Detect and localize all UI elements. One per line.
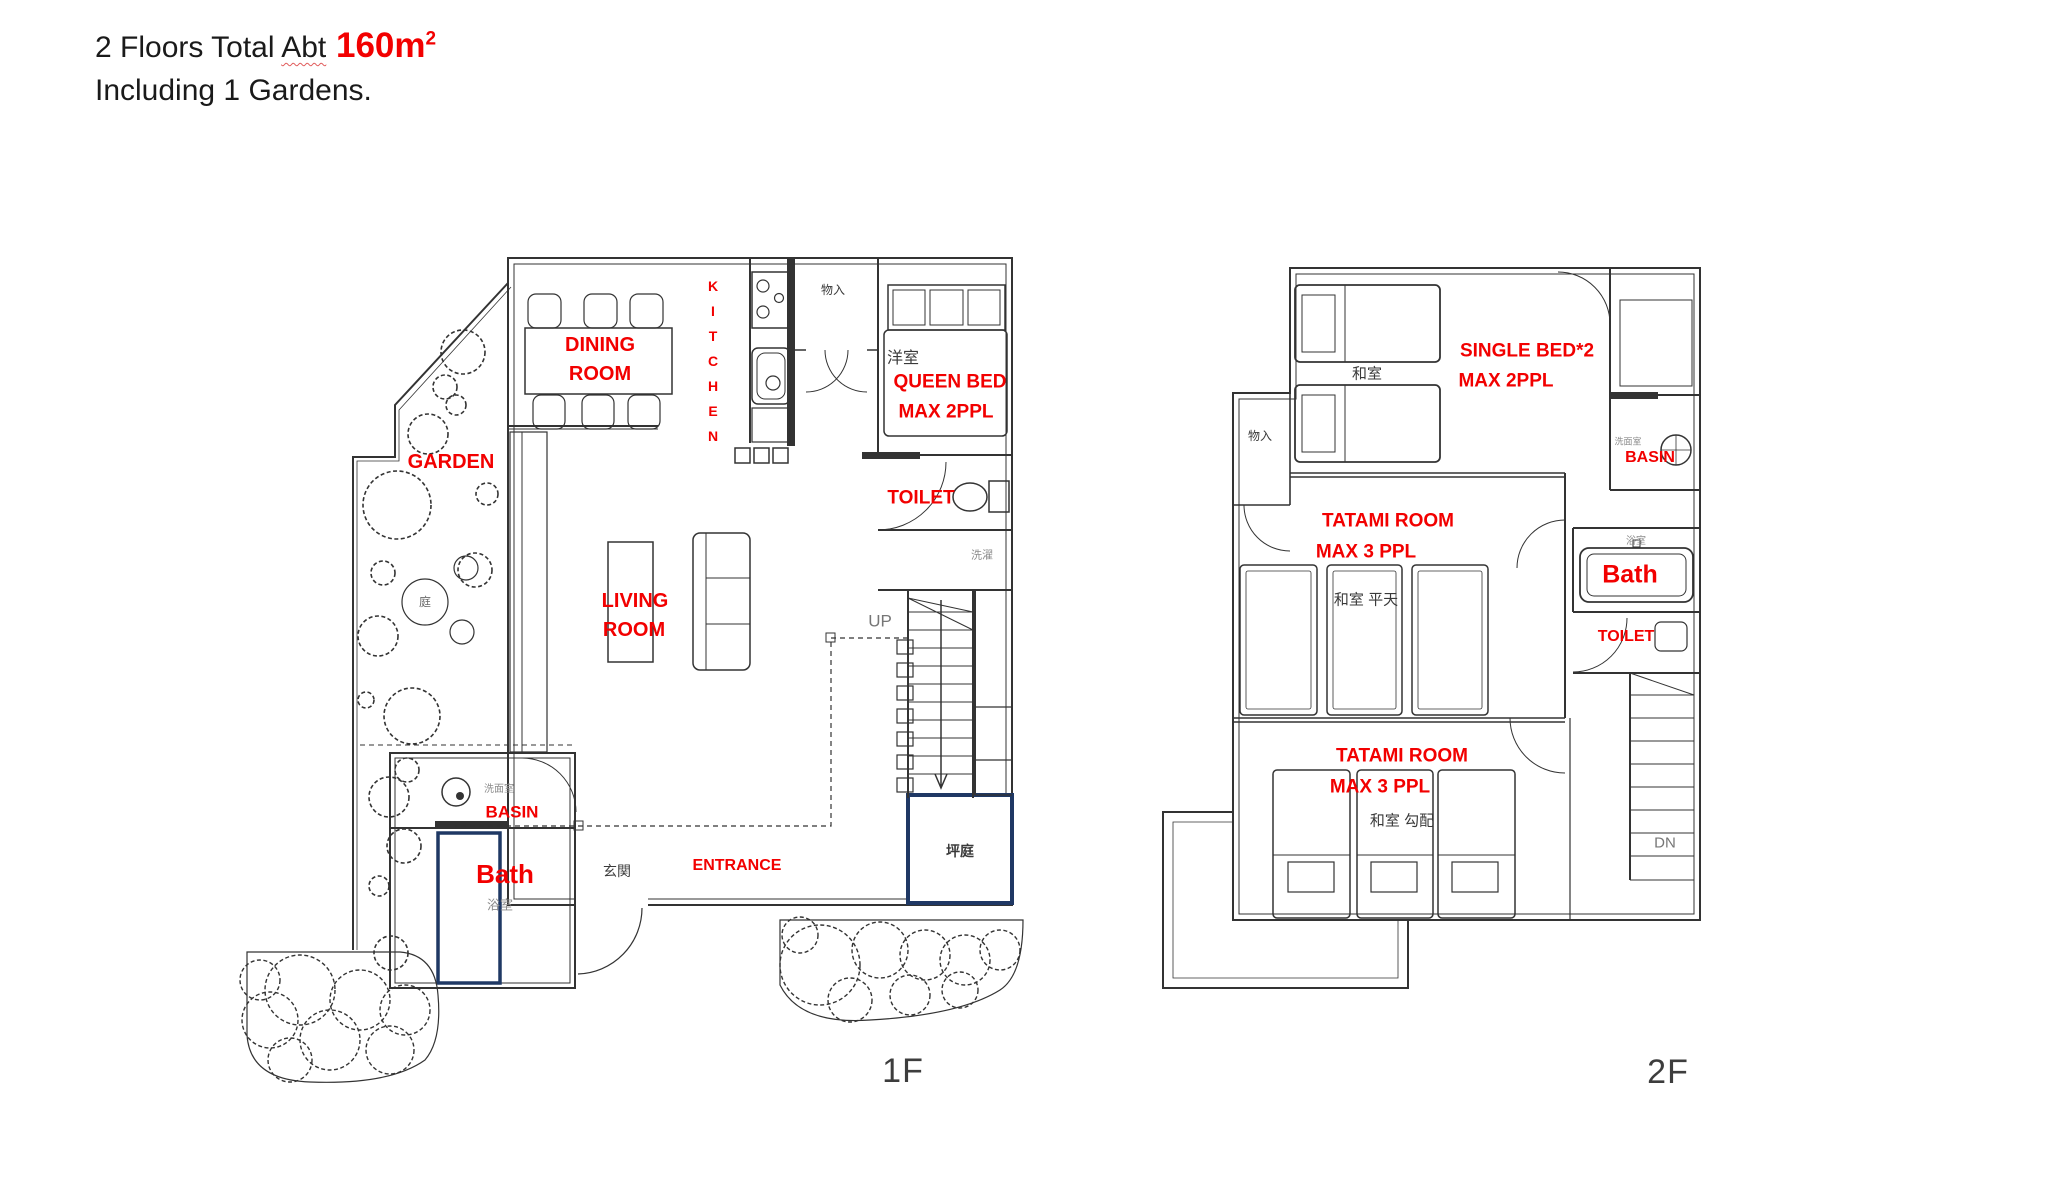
- tatami-mid-label-line2: MAX 3 PPL: [1316, 543, 1416, 562]
- shrubs-bottom-middle: [780, 917, 1023, 1022]
- queen-bedroom: [862, 258, 1012, 459]
- kitchen-label: KITCHEN: [705, 278, 721, 453]
- stove-burner-icon: [775, 294, 784, 303]
- chair-icon: [630, 294, 663, 328]
- chair-icon: [628, 395, 660, 429]
- floorplan-canvas: [0, 0, 2048, 1183]
- stairs-dn-label: DN: [1654, 836, 1676, 851]
- basin-label-1f: BASIN: [486, 804, 539, 821]
- futons-middle: [1240, 565, 1488, 715]
- toilet-icon: [953, 483, 987, 511]
- balcony-outline: [1163, 812, 1408, 988]
- washroom-jp-label-2f: 洗面室: [1614, 438, 1641, 447]
- toilet-room-2f: [1573, 618, 1700, 673]
- chair-icon: [582, 395, 614, 429]
- chair-icon: [584, 294, 617, 328]
- washroom-jp-label-1f: 洗面室: [484, 785, 514, 795]
- courtyard-label: 坪庭: [946, 844, 974, 858]
- queen-bed-icon: [888, 285, 1005, 330]
- washitsu-mid-label: 和室 平天: [1334, 593, 1398, 608]
- genkan-label: 玄関: [603, 864, 631, 878]
- single-bed-icon: [1295, 385, 1440, 462]
- floor1-label: 1F: [882, 1054, 924, 1088]
- toilet-label-1f: TOILET: [887, 489, 954, 508]
- western-room-label: 洋室: [887, 351, 919, 367]
- dining-set: [508, 294, 672, 429]
- stairs-1f: [897, 590, 1012, 798]
- page-subtitle: Including 1 Gardens.: [95, 74, 436, 108]
- living-room-label-line1: LIVING: [602, 591, 669, 611]
- closet-label-2f: 物入: [1248, 430, 1272, 442]
- floor2-label: 2F: [1647, 1055, 1689, 1089]
- dining-room-label-line2: ROOM: [569, 364, 631, 384]
- queen-bed-label-line2: MAX 2PPL: [898, 403, 993, 422]
- closet-1f: [795, 350, 878, 392]
- bath-label-1f: Bath: [476, 861, 534, 887]
- toilet-room-1f: [878, 462, 1012, 590]
- chair-icon: [528, 294, 561, 328]
- entrance-label: ENTRANCE: [693, 858, 782, 874]
- bathroom-jp-label-1f: 浴室: [487, 899, 513, 912]
- kitchen-fixtures: [735, 258, 795, 463]
- title-prefix: 2 Floors Total: [95, 31, 281, 64]
- futon-icon: [1438, 770, 1515, 918]
- floorplan-page: 2 Floors Total Abt 160m2 Including 1 Gar…: [0, 0, 2048, 1183]
- tatami-low-label-line2: MAX 3 PPL: [1330, 778, 1430, 797]
- washitsu-top-label: 和室: [1352, 367, 1382, 382]
- basin-label-2f: BASIN: [1625, 450, 1675, 466]
- queen-bed-label-line1: QUEEN BED: [894, 373, 1007, 392]
- garden-label: GARDEN: [408, 452, 495, 472]
- garden-chair-icon: [450, 620, 474, 644]
- bath-label-2f: Bath: [1602, 563, 1658, 588]
- chair-icon: [533, 395, 565, 429]
- title-block: 2 Floors Total Abt 160m2 Including 1 Gar…: [95, 26, 436, 108]
- stairs-up-label: UP: [868, 613, 892, 630]
- futon-icon: [1327, 565, 1402, 715]
- tatami-low-label-line1: TATAMI ROOM: [1336, 747, 1468, 766]
- sofa-icon: [693, 533, 750, 670]
- garden-stone-label: 庭: [419, 596, 431, 608]
- dining-room-label-line1: DINING: [565, 335, 635, 355]
- shrubs-bottom-left: [240, 952, 439, 1082]
- washitsu-low-label: 和室 勾配: [1370, 814, 1434, 829]
- tatami-mid-label-line1: TATAMI ROOM: [1322, 512, 1454, 531]
- title-area: 160m2: [326, 26, 436, 65]
- title-abt: Abt: [281, 31, 326, 64]
- single-bed-icon: [1295, 285, 1440, 362]
- single-bed-label-line1: SINGLE BED*2: [1460, 342, 1594, 361]
- laundry-label: 洗濯: [971, 551, 993, 562]
- stair-arrow-icon: [935, 600, 947, 788]
- toilet-label-2f: TOILET: [1598, 629, 1655, 645]
- bathroom-jp-label-2f: 浴室: [1626, 537, 1646, 547]
- stove-burner-icon: [757, 280, 769, 292]
- stove-burner-icon: [757, 306, 769, 318]
- living-room-label-line2: ROOM: [603, 620, 665, 640]
- single-bed-label-line2: MAX 2PPL: [1458, 372, 1553, 391]
- futon-icon: [1412, 565, 1488, 715]
- closet-label-1f: 物入: [821, 284, 845, 296]
- toilet-icon-2f: [1655, 622, 1687, 651]
- futon-icon: [1240, 565, 1317, 715]
- page-title: 2 Floors Total Abt 160m2: [95, 26, 436, 66]
